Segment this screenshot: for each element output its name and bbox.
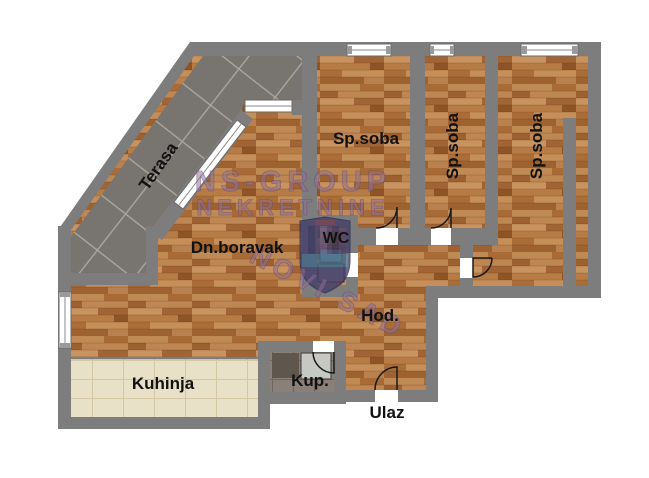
room-label-spsoba-3: Sp.soba [527, 112, 546, 179]
wall-bath-left [258, 341, 270, 404]
wall-bedroom1-2 [410, 56, 425, 228]
wall-window-stub [292, 100, 302, 115]
room-label-wc: WC [323, 230, 350, 247]
wall-bedroom3-inner [563, 118, 576, 287]
watermark-brand-line1: NS-GROUP [195, 166, 391, 198]
door-gap-entrance [375, 390, 398, 402]
window-bedroom3 [521, 44, 578, 56]
room-label-kuhinja: Kuhinja [132, 374, 195, 393]
window-bedroom2 [430, 44, 454, 56]
door-gap-bathroom [313, 341, 334, 352]
floor-plan-image: NS-GROUP NEKRETNINE NOVI SAD Terasa Sp.s… [0, 0, 649, 478]
door-gap-bedroom1 [376, 228, 398, 245]
room-label-spsoba-1: Sp.soba [333, 129, 400, 148]
wall-bedroom3-door-stub-top [460, 245, 473, 258]
wall-hall-right [426, 286, 438, 402]
wall-bath-bottom [258, 392, 346, 404]
window-bedroom1 [347, 44, 391, 56]
wall-bedroom3-door-stub-bottom [460, 278, 473, 287]
door-gap-bedroom2 [431, 228, 451, 245]
room-label-ulaz: Ulaz [370, 403, 405, 422]
wall-arm-bottom [426, 286, 601, 298]
room-label-spsoba-2: Sp.soba [443, 112, 462, 179]
wall-bedroom2-3 [485, 56, 498, 245]
room-label-kup: Kup. [291, 371, 329, 390]
room-label-dnboravak: Dn.boravak [191, 238, 284, 257]
window-terrace-top [245, 100, 292, 112]
watermark-brand-line2: NEKRETNINE [196, 195, 389, 220]
window-living-left [59, 292, 71, 348]
wall-bedrooms-bottom [346, 228, 492, 245]
floor-plan: NS-GROUP NEKRETNINE NOVI SAD Terasa Sp.s… [0, 0, 649, 478]
wall-right [588, 42, 601, 298]
door-gap-bedroom3 [460, 258, 473, 278]
wall-terrace-bottom [58, 273, 158, 285]
wall-kitchen-bottom [58, 417, 270, 429]
room-label-hod: Hod. [361, 306, 399, 325]
